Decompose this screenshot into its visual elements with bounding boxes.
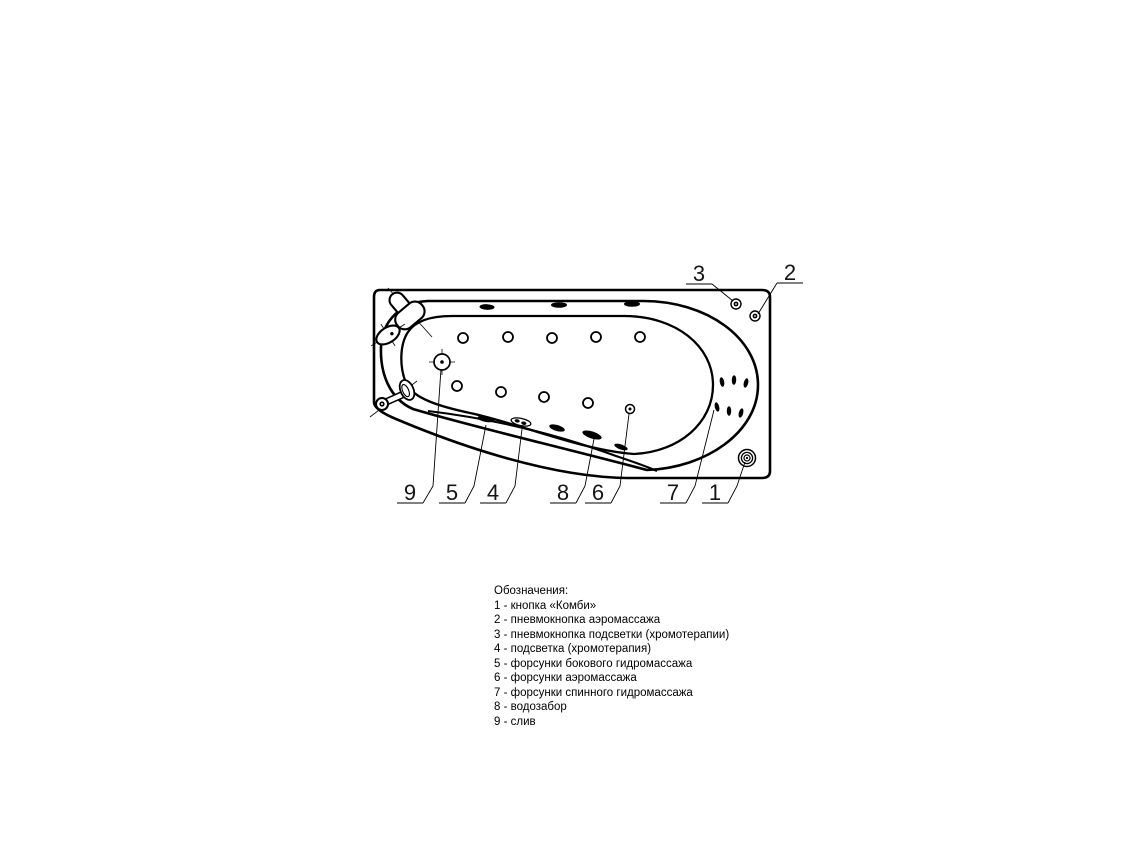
callout-9-label: 9	[404, 480, 416, 505]
callout-5: 5	[439, 425, 486, 505]
legend-item-4: 4 - подсветка (хромотерапия)	[494, 642, 729, 657]
air-jet	[496, 387, 506, 397]
drain-lever	[370, 378, 417, 417]
rim-jet	[624, 301, 640, 307]
back-jet	[714, 402, 721, 412]
side-jet	[548, 423, 565, 433]
callout-7-label: 7	[667, 480, 679, 505]
callout-5-label: 5	[446, 480, 458, 505]
back-jet	[743, 378, 750, 388]
callout-4-label: 4	[487, 480, 499, 505]
legend-title: Обозначения:	[494, 584, 729, 599]
legend-item-1: 1 - кнопка «Комби»	[494, 599, 729, 614]
back-jet	[732, 375, 737, 385]
air-jet	[503, 332, 513, 342]
side-jet	[614, 442, 629, 451]
legend-item-5: 5 - форсунки бокового гидромассажа	[494, 657, 729, 672]
top-rim-jets	[479, 301, 640, 310]
tub-rim	[381, 301, 758, 470]
callout-7: 7	[660, 410, 714, 505]
callout-1-label: 1	[709, 480, 721, 505]
legend-item-2: 2 - пневмокнопка аэромассажа	[494, 613, 729, 628]
callout-2-label: 2	[784, 260, 796, 285]
back-jet	[738, 408, 745, 418]
air-jet	[547, 333, 557, 343]
drain-symbol	[429, 349, 455, 375]
back-jet	[719, 377, 725, 387]
page: 9 5 4 8 6 7 1	[0, 0, 1123, 842]
back-jets	[714, 375, 750, 418]
side-jet	[581, 429, 602, 442]
rim-jet	[551, 302, 567, 308]
rim-jet	[479, 304, 494, 310]
legend-item-8: 8 - водозабор	[494, 700, 729, 715]
air-jet	[583, 398, 593, 408]
callout-8-label: 8	[557, 480, 569, 505]
air-jet-marked	[626, 405, 635, 414]
kombi-button	[739, 450, 756, 467]
back-jet	[727, 406, 731, 416]
air-jet	[635, 332, 645, 342]
callout-3: 3	[686, 261, 733, 301]
air-jet	[539, 392, 549, 402]
air-jets	[452, 332, 645, 414]
callout-3-label: 3	[693, 261, 705, 286]
air-jet	[452, 381, 462, 391]
legend: Обозначения: 1 - кнопка «Комби» 2 - пнев…	[494, 584, 729, 729]
air-jet	[458, 333, 468, 343]
callout-6-label: 6	[592, 480, 604, 505]
legend-item-3: 3 - пневмокнопка подсветки (хромотерапии…	[494, 628, 729, 643]
legend-item-7: 7 - форсунки спинного гидромассажа	[494, 686, 729, 701]
legend-item-9: 9 - слив	[494, 715, 729, 730]
air-jet	[591, 332, 601, 342]
callout-4: 4	[480, 429, 522, 505]
legend-item-6: 6 - форсунки аэромассажа	[494, 671, 729, 686]
callout-1: 1	[702, 462, 745, 505]
callout-2: 2	[758, 260, 803, 314]
